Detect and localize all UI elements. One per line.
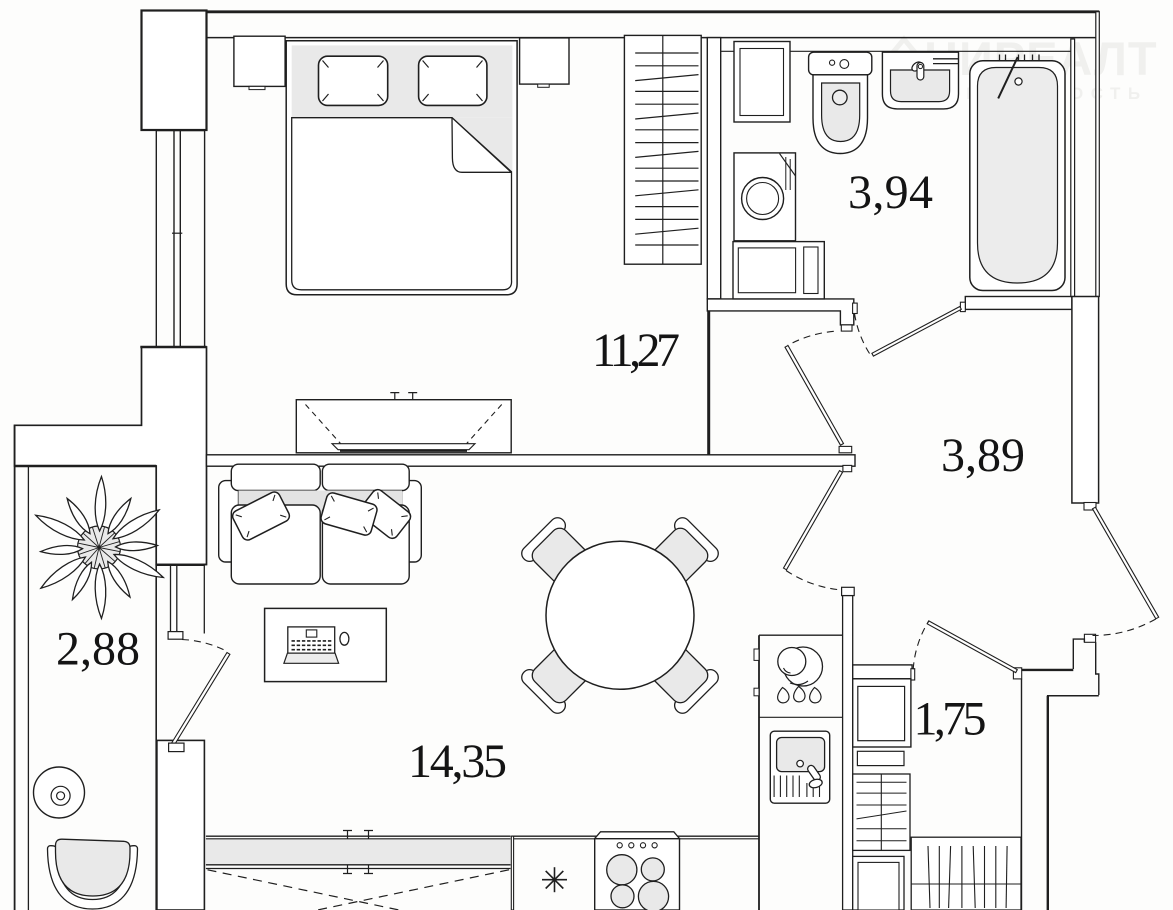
svg-text:3,94: 3,94 xyxy=(848,166,933,219)
svg-text:11,27: 11,27 xyxy=(592,324,680,377)
svg-text:1,75: 1,75 xyxy=(914,693,987,746)
svg-text:2,88: 2,88 xyxy=(56,623,140,676)
svg-text:14,35: 14,35 xyxy=(408,735,507,788)
svg-text:3,89: 3,89 xyxy=(941,429,1025,482)
